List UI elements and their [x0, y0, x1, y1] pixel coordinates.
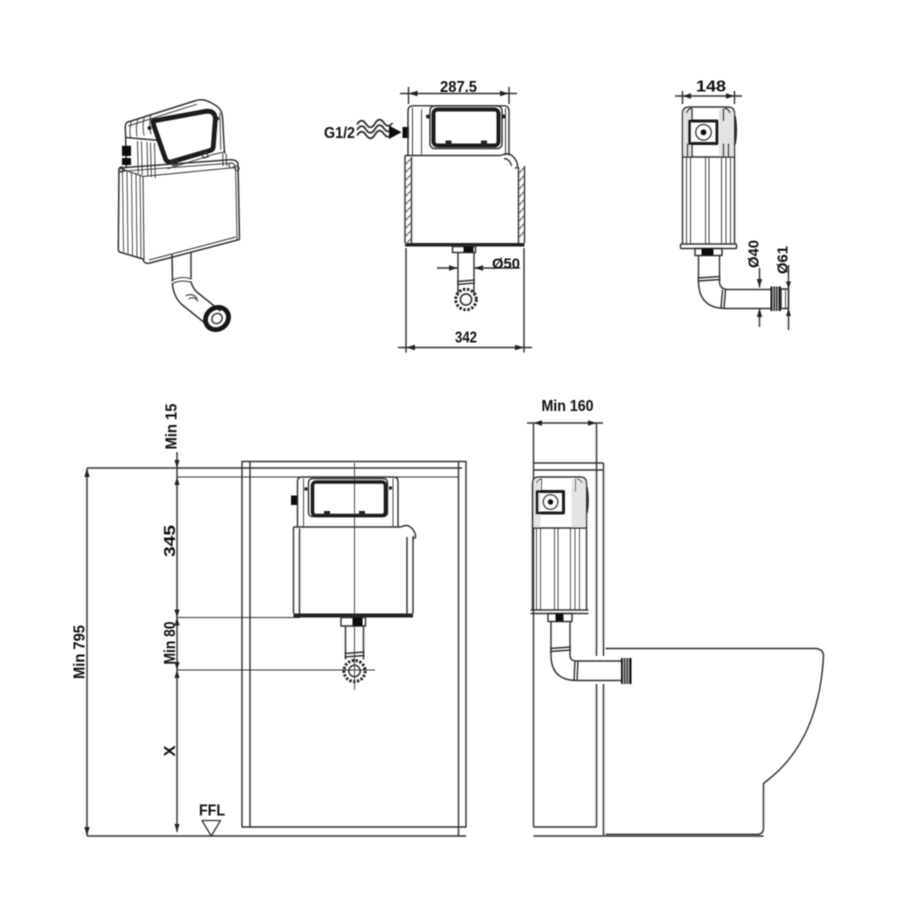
svg-text:X: X — [162, 745, 179, 757]
svg-text:342: 342 — [455, 330, 477, 347]
svg-text:Min 15: Min 15 — [164, 403, 181, 449]
svg-text:Min 160: Min 160 — [542, 398, 594, 415]
svg-text:287.5: 287.5 — [440, 79, 477, 96]
svg-text:Ø50: Ø50 — [492, 256, 520, 273]
svg-text:Min 80: Min 80 — [162, 622, 179, 665]
svg-text:Min 795: Min 795 — [72, 625, 89, 679]
svg-text:G1/2: G1/2 — [324, 125, 355, 142]
svg-text:FFL: FFL — [199, 803, 225, 820]
svg-text:345: 345 — [162, 525, 179, 557]
svg-text:148: 148 — [696, 79, 726, 96]
svg-text:Ø40: Ø40 — [746, 240, 763, 268]
